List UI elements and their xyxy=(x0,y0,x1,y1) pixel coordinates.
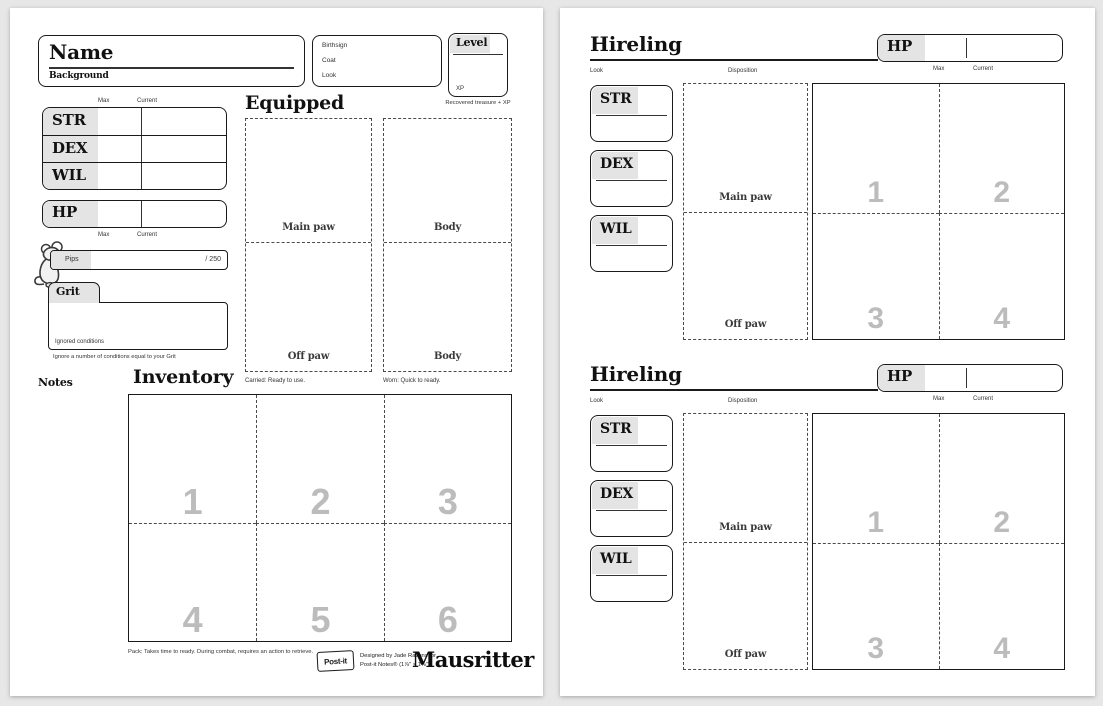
inventory-grid: 1 2 3 4 5 6 xyxy=(128,394,512,642)
paw-column: Main paw Off paw xyxy=(683,83,808,340)
background-label: Background xyxy=(49,71,109,81)
pips-box: Pips / 250 xyxy=(50,250,228,270)
wil-label: WIL xyxy=(600,221,632,237)
inventory-slot-3[interactable]: 3 xyxy=(384,395,511,523)
look-input[interactable] xyxy=(361,70,433,81)
hireling-name-line[interactable] xyxy=(590,59,878,61)
slot-number: 5 xyxy=(310,602,330,641)
dex-label: DEX xyxy=(600,156,633,172)
inventory-slot-2[interactable]: 2 xyxy=(256,395,383,523)
str-label: STR xyxy=(600,91,632,107)
wil-current-input[interactable] xyxy=(143,163,226,189)
dex-row: DEX xyxy=(43,135,226,162)
pips-label: Pips xyxy=(65,256,79,263)
pips-denominator: / 250 xyxy=(205,256,221,263)
attributes-current-label: Current xyxy=(137,98,157,104)
attributes-box: STR DEX WIL xyxy=(42,107,227,190)
body-slot-top[interactable]: Body xyxy=(384,119,511,242)
str-label: STR xyxy=(600,421,632,437)
wil-max-input[interactable] xyxy=(98,163,141,189)
name-input-line[interactable] xyxy=(49,67,294,69)
slot-number: 3 xyxy=(438,484,458,523)
str-line xyxy=(596,445,667,446)
slot-number: 6 xyxy=(438,602,458,641)
dex-box[interactable]: DEX xyxy=(590,480,673,537)
hp-label: HP xyxy=(887,367,912,385)
hp-max-input[interactable] xyxy=(98,201,141,227)
str-max-input[interactable] xyxy=(98,108,141,135)
disposition-label: Disposition xyxy=(728,398,757,404)
main-paw-label: Main paw xyxy=(282,222,335,242)
birthsign-label: Birthsign xyxy=(322,42,347,49)
hireling-inventory-grid: 1 2 3 4 xyxy=(812,413,1065,670)
hireling-block-2: Hireling HP Max Current Look Disposition… xyxy=(560,362,1095,662)
main-paw-slot[interactable]: Main paw xyxy=(684,84,807,212)
main-paw-label: Main paw xyxy=(719,522,772,542)
hp-current-label: Current xyxy=(973,396,993,402)
main-paw-slot[interactable]: Main paw xyxy=(684,414,807,542)
pips-input[interactable] xyxy=(93,251,193,269)
wil-line xyxy=(596,245,667,246)
look-label: Look xyxy=(590,398,603,404)
hp-max-input[interactable] xyxy=(925,365,966,391)
slot-number: 2 xyxy=(993,508,1010,543)
dex-max-input[interactable] xyxy=(98,136,141,162)
hireling-slot-3[interactable]: 3 xyxy=(813,543,939,669)
hireling-hp-box: HP xyxy=(877,364,1063,392)
hireling-name-line[interactable] xyxy=(590,389,878,391)
off-paw-slot[interactable]: Off paw xyxy=(246,243,371,371)
ignored-conditions-label: Ignored conditions xyxy=(55,339,104,345)
hp-divider xyxy=(141,201,142,227)
dex-divider xyxy=(141,136,142,162)
hp-current-label: Current xyxy=(973,66,993,72)
slot-number: 4 xyxy=(183,602,203,641)
level-input[interactable] xyxy=(453,56,503,84)
inventory-slot-6[interactable]: 6 xyxy=(384,523,511,641)
hp-max-input[interactable] xyxy=(925,35,966,61)
coat-input[interactable] xyxy=(361,55,433,66)
slot-number: 1 xyxy=(867,508,884,543)
body-top-label: Body xyxy=(434,222,461,242)
hp-current-input[interactable] xyxy=(143,201,226,227)
dex-current-input[interactable] xyxy=(143,136,226,162)
wil-row: WIL xyxy=(43,162,226,189)
look-label: Look xyxy=(590,68,603,74)
hireling-slot-3[interactable]: 3 xyxy=(813,213,939,339)
slot-number: 2 xyxy=(993,178,1010,213)
grit-box[interactable]: Ignored conditions xyxy=(48,302,228,350)
hp-divider xyxy=(966,38,967,58)
wil-box[interactable]: WIL xyxy=(590,215,673,272)
birthsign-input[interactable] xyxy=(361,40,433,51)
dex-label: DEX xyxy=(43,136,98,162)
background-input[interactable] xyxy=(129,71,294,83)
dex-label: DEX xyxy=(600,486,633,502)
main-paw-slot[interactable]: Main paw xyxy=(246,119,371,242)
slot-number: 2 xyxy=(310,484,330,523)
level-label: Level xyxy=(456,36,487,49)
slot-number: 3 xyxy=(867,304,884,339)
inventory-slot-1[interactable]: 1 xyxy=(129,395,256,523)
character-sheet-page: Name Background Birthsign Coat Look Leve… xyxy=(10,8,543,696)
dex-line xyxy=(596,510,667,511)
look-label: Look xyxy=(322,72,336,79)
hireling-slot-1[interactable]: 1 xyxy=(813,84,939,213)
off-paw-label: Off paw xyxy=(725,319,766,339)
hireling-title: Hireling xyxy=(590,362,682,386)
level-box: Level XP xyxy=(448,33,508,97)
name-label: Name xyxy=(49,40,113,64)
hp-max-label: Max xyxy=(98,232,109,238)
postit-logo: Post-it xyxy=(317,650,355,672)
slot-number: 3 xyxy=(867,634,884,669)
grit-tab: Grit xyxy=(48,282,100,303)
str-line xyxy=(596,115,667,116)
grit-caption: Ignore a number of conditions equal to y… xyxy=(53,354,176,360)
xp-input[interactable] xyxy=(471,84,503,95)
hireling-inventory-grid: 1 2 3 4 xyxy=(812,83,1065,340)
wil-label: WIL xyxy=(43,163,98,189)
str-box[interactable]: STR xyxy=(590,415,673,472)
hp-box: HP xyxy=(42,200,227,228)
dex-box[interactable]: DEX xyxy=(590,150,673,207)
hp-current-input[interactable] xyxy=(968,365,1062,391)
xp-label: XP xyxy=(456,86,464,92)
str-box[interactable]: STR xyxy=(590,85,673,142)
slot-number: 1 xyxy=(183,484,203,523)
inventory-title: Inventory xyxy=(133,366,233,388)
notes-area[interactable] xyxy=(38,390,123,640)
hp-current-label: Current xyxy=(137,232,157,238)
hireling-slot-1[interactable]: 1 xyxy=(813,414,939,543)
equipped-worn-column: Body Body xyxy=(383,118,512,372)
equipped-carried-column: Main paw Off paw xyxy=(245,118,372,372)
wil-box[interactable]: WIL xyxy=(590,545,673,602)
str-divider xyxy=(141,108,142,135)
str-current-input[interactable] xyxy=(143,108,226,135)
look-input[interactable] xyxy=(612,392,722,406)
wil-label: WIL xyxy=(600,551,632,567)
level-caption: Recovered treasure + XP xyxy=(438,100,518,106)
disposition-input[interactable] xyxy=(765,62,875,76)
hireling-slot-4[interactable]: 4 xyxy=(939,213,1065,339)
details-box: Birthsign Coat Look xyxy=(312,35,442,87)
slot-number: 4 xyxy=(993,634,1010,669)
look-input[interactable] xyxy=(612,62,722,76)
slot-number: 1 xyxy=(867,178,884,213)
inventory-slot-4[interactable]: 4 xyxy=(129,523,256,641)
pack-caption: Pack: Takes time to ready. During combat… xyxy=(128,649,313,655)
worn-caption: Worn: Quick to ready. xyxy=(383,378,440,384)
carried-caption: Carried: Ready to use. xyxy=(245,378,305,384)
hireling-slot-2[interactable]: 2 xyxy=(939,84,1065,213)
body-slot-bottom[interactable]: Body xyxy=(384,243,511,371)
hireling-block-1: Hireling HP Max Current Look Disposition… xyxy=(560,32,1095,332)
name-box: Name Background xyxy=(38,35,305,87)
body-bottom-label: Body xyxy=(434,351,461,371)
hireling-sheet-page: Hireling HP Max Current Look Disposition… xyxy=(560,8,1095,696)
hp-divider xyxy=(966,368,967,388)
off-paw-label: Off paw xyxy=(725,649,766,669)
hireling-slot-2[interactable]: 2 xyxy=(939,414,1065,543)
equipped-title: Equipped xyxy=(245,92,344,114)
inventory-slot-5[interactable]: 5 xyxy=(256,523,383,641)
main-paw-label: Main paw xyxy=(719,192,772,212)
grit-label: Grit xyxy=(56,285,80,298)
hireling-slot-4[interactable]: 4 xyxy=(939,543,1065,669)
hireling-hp-box: HP xyxy=(877,34,1063,62)
off-paw-label: Off paw xyxy=(288,351,329,371)
mausritter-logo: Mausritter xyxy=(412,647,512,672)
disposition-input[interactable] xyxy=(765,392,875,406)
attributes-max-label: Max xyxy=(98,98,109,104)
dex-line xyxy=(596,180,667,181)
hireling-title: Hireling xyxy=(590,32,682,56)
hp-max-label: Max xyxy=(933,66,944,72)
postit-logo-text: Post-it xyxy=(324,656,347,666)
notes-label: Notes xyxy=(38,376,73,389)
coat-label: Coat xyxy=(322,57,336,64)
str-row: STR xyxy=(43,108,226,135)
off-paw-slot[interactable]: Off paw xyxy=(684,543,807,669)
off-paw-slot[interactable]: Off paw xyxy=(684,213,807,339)
slot-number: 4 xyxy=(993,304,1010,339)
hp-current-input[interactable] xyxy=(968,35,1062,61)
wil-divider xyxy=(141,163,142,189)
str-label: STR xyxy=(43,108,98,135)
wil-line xyxy=(596,575,667,576)
hp-max-label: Max xyxy=(933,396,944,402)
disposition-label: Disposition xyxy=(728,68,757,74)
paw-column: Main paw Off paw xyxy=(683,413,808,670)
hp-label: HP xyxy=(52,203,77,221)
hp-label: HP xyxy=(887,37,912,55)
